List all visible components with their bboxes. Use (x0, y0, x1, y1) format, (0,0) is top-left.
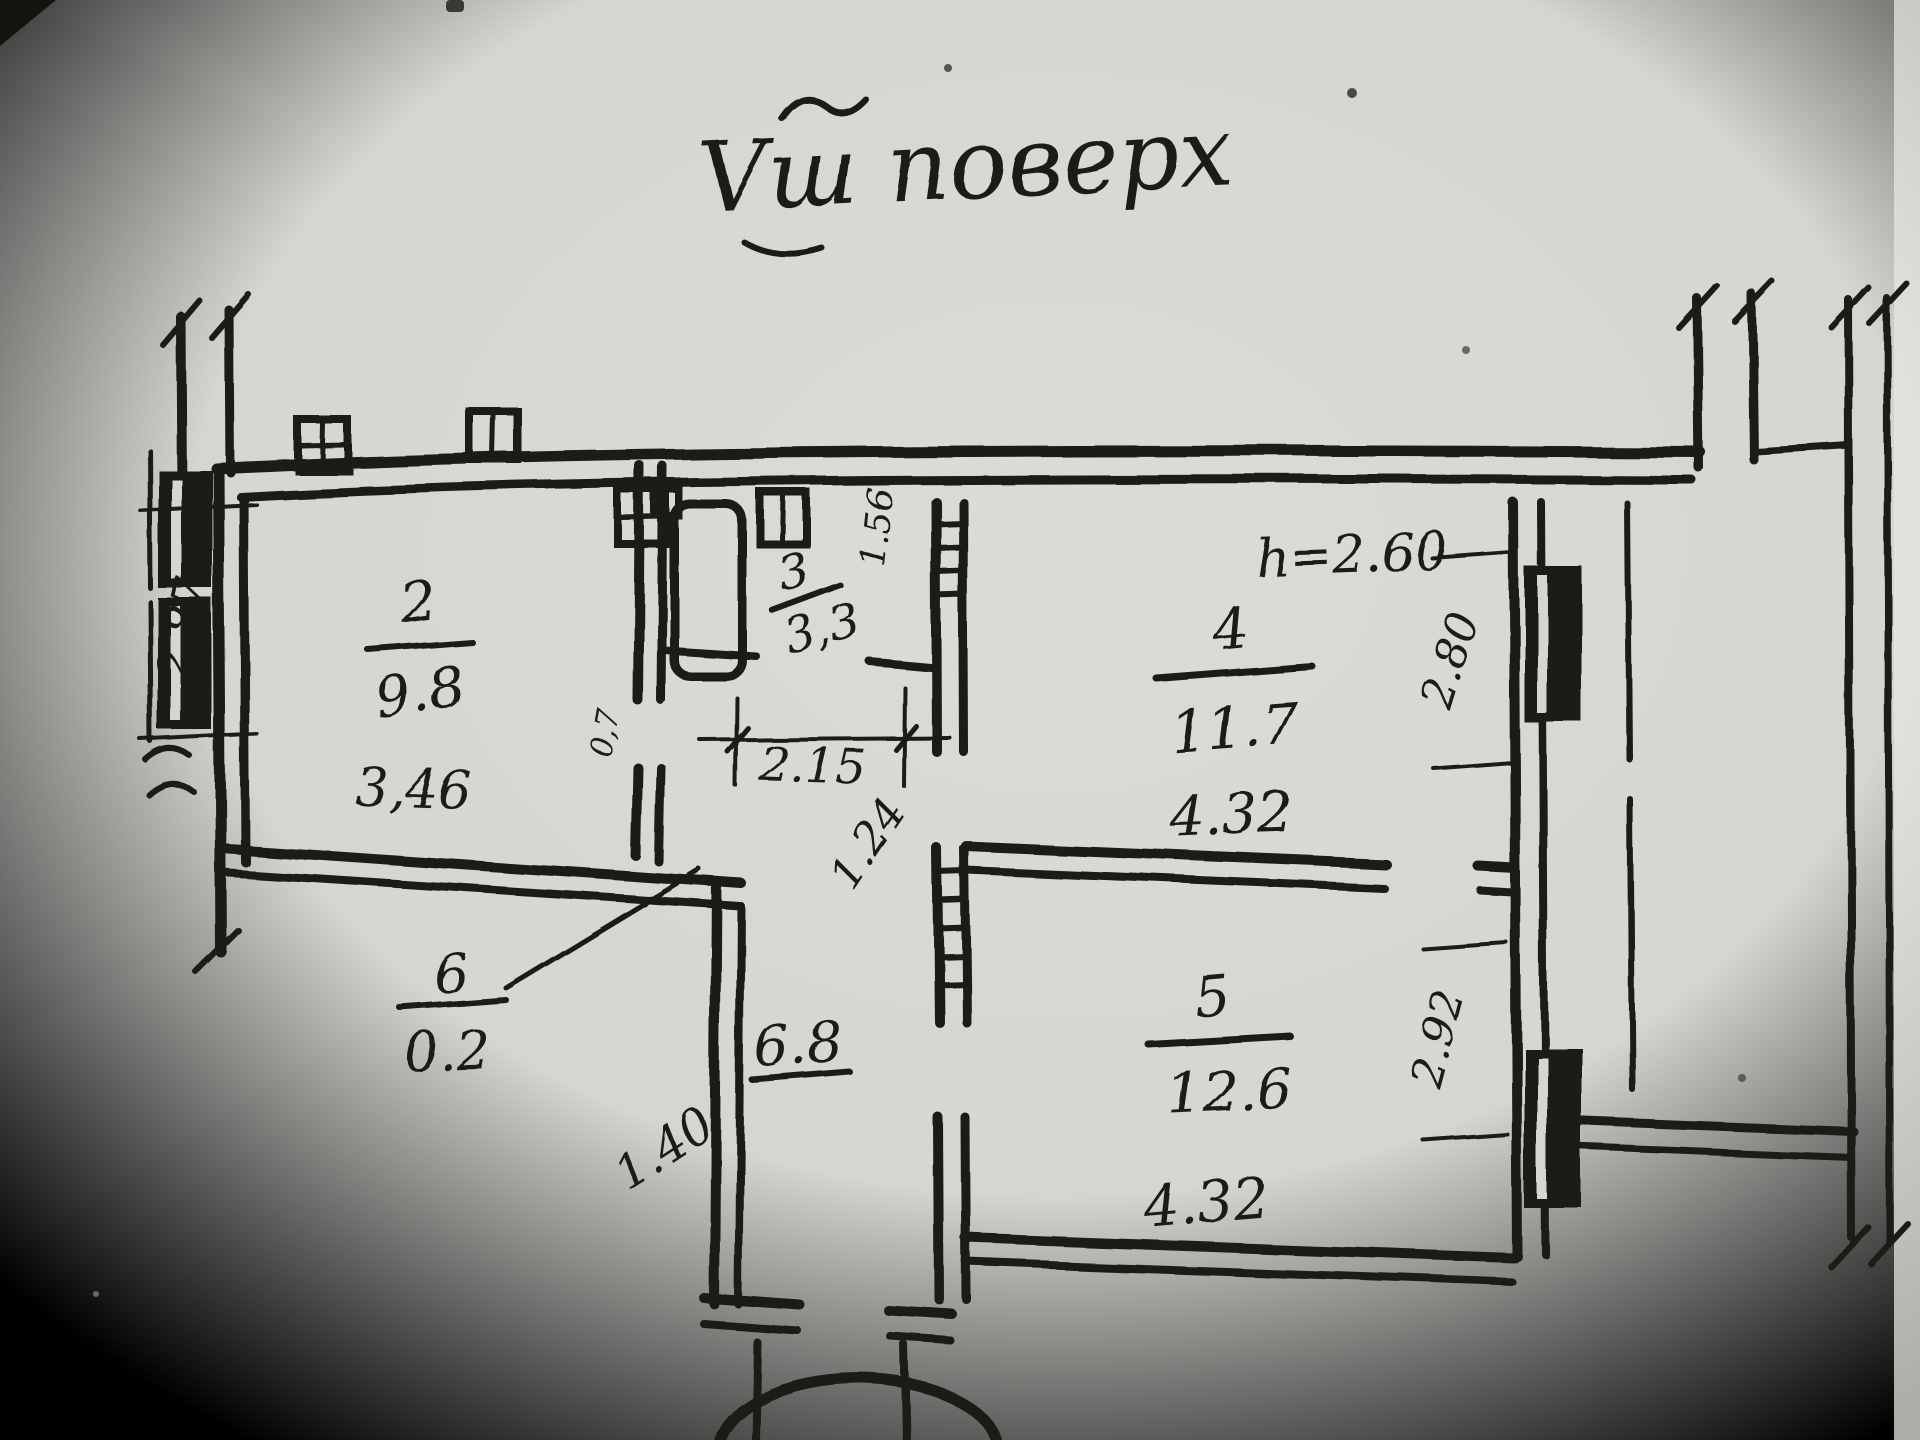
window-icon (158, 470, 212, 588)
room4-area-label: 11.7 (1168, 690, 1302, 767)
room2-width-dim: 3,46 (354, 757, 472, 821)
hall-width-top-dim: 2.15 (757, 736, 867, 796)
room6-area-label: 0.2 (403, 1019, 491, 1085)
hall-area-label: 6.8 (752, 1010, 845, 1081)
window-icon (1524, 1048, 1582, 1208)
room3-width-dim: 1.56 (852, 485, 901, 569)
scanned-floor-plan-page: Vш поверх 2 9.8 3,46 2,87 3 3,3 1.56 0,7… (0, 0, 1920, 1440)
room5-width-dim: 4.32 (1140, 1166, 1271, 1242)
room5-area-label: 12.6 (1165, 1056, 1293, 1127)
room4-number-label: 4 (1208, 595, 1251, 663)
room4-ceiling-height-label: h=2.60 (1254, 522, 1449, 589)
floor-plan-svg: Vш поверх 2 9.8 3,46 2,87 3 3,3 1.56 0,7… (0, 0, 1920, 1440)
room5-number-label: 5 (1192, 964, 1233, 1032)
room4-width-dim: 4.32 (1167, 781, 1295, 850)
room6-number-label: 6 (431, 941, 470, 1006)
window-icon (1524, 566, 1582, 722)
